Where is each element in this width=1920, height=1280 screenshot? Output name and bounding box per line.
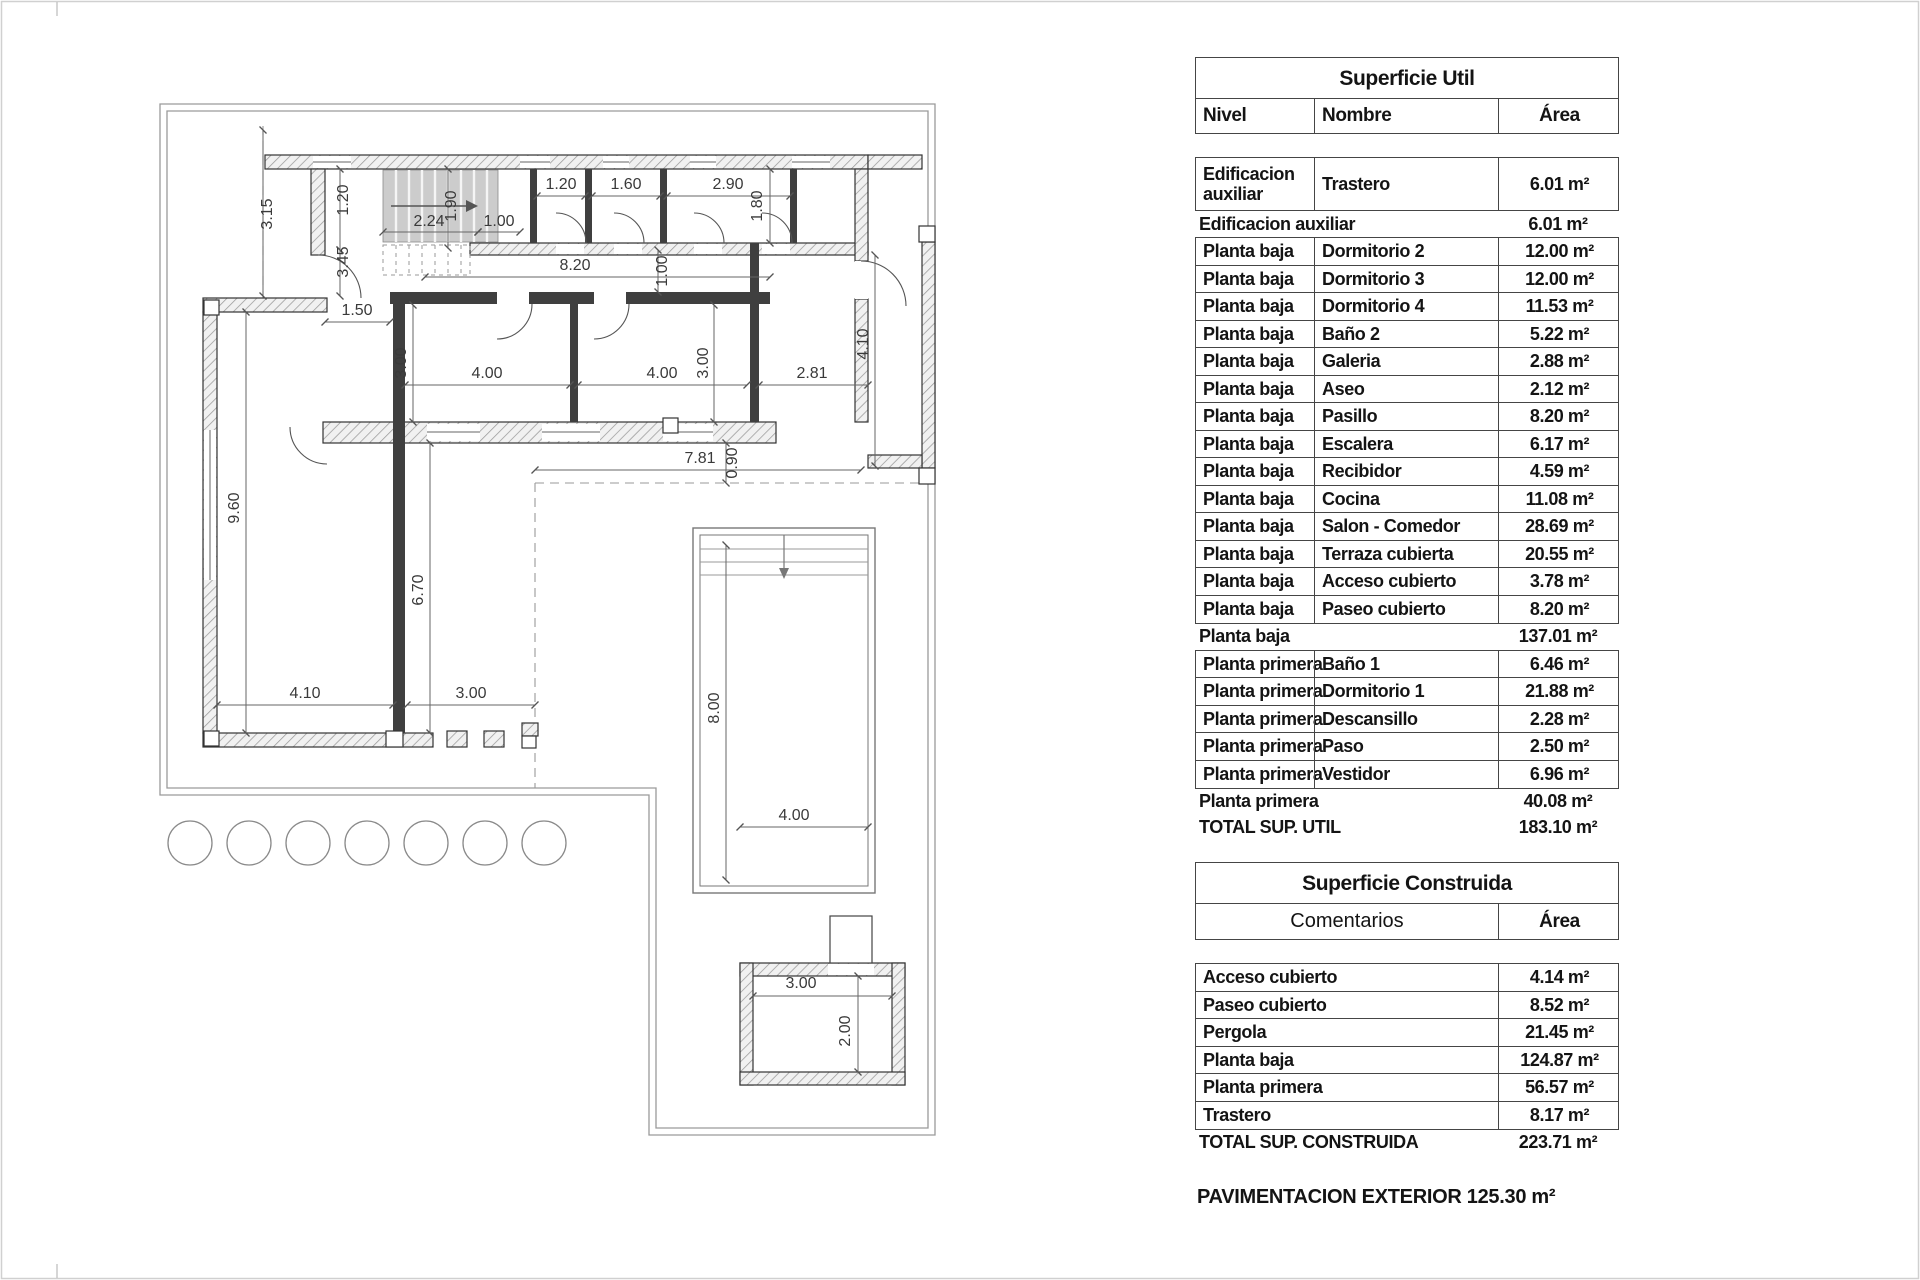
table-row: Planta primeraBaño 16.46 m² [1195, 650, 1619, 679]
table-row: Planta bajaRecibidor4.59 m² [1195, 457, 1619, 486]
table-row: Planta primeraVestidor6.96 m² [1195, 760, 1619, 789]
subtotal-label: Planta baja [1195, 624, 1497, 650]
subtotal-row: Planta primera40.08 m² [1195, 789, 1619, 815]
subtotal-area: 137.01 m² [1497, 624, 1619, 650]
dimension-label: 1.20 [545, 176, 576, 193]
table-row: Planta bajaDormitorio 212.00 m² [1195, 237, 1619, 266]
cell-area: 2.28 m² [1498, 706, 1620, 733]
cell-nombre: Paso [1314, 733, 1498, 760]
cell-nombre: Baño 2 [1314, 321, 1498, 348]
dimension-label: 2.81 [796, 365, 827, 382]
table-row: Planta baja124.87 m² [1195, 1046, 1619, 1075]
table-row: Planta bajaAseo2.12 m² [1195, 375, 1619, 404]
cell-nombre: Paseo cubierto [1314, 596, 1498, 623]
table-row: Planta bajaGaleria2.88 m² [1195, 347, 1619, 376]
total-label: TOTAL SUP. CONSTRUIDA [1195, 1130, 1497, 1156]
cell-nombre: Dormitorio 1 [1314, 678, 1498, 705]
subtotal-label: TOTAL SUP. UTIL [1195, 815, 1497, 841]
dimension-label: 8.00 [706, 692, 723, 723]
col-header-nombre: Nombre [1314, 99, 1498, 133]
dimension-label: 8.20 [559, 257, 590, 274]
cell-area: 56.57 m² [1498, 1074, 1620, 1101]
sheet-frame [2, 2, 1919, 1279]
col-header-comentarios: Comentarios [1196, 904, 1498, 939]
pavimentacion-note: PAVIMENTACION EXTERIOR 125.30 m² [1197, 1186, 1555, 1209]
table-row: Planta primera56.57 m² [1195, 1073, 1619, 1102]
dimension-label: 1.90 [443, 190, 460, 221]
cell-comentario: Planta baja [1196, 1047, 1498, 1074]
cell-area: 8.52 m² [1498, 992, 1620, 1019]
cell-nivel: Planta baja [1196, 458, 1314, 485]
table-row: Planta bajaDormitorio 312.00 m² [1195, 265, 1619, 294]
table-row: Edificacion auxiliarTrastero6.01 m² [1195, 157, 1619, 211]
cell-nivel: Planta primera [1196, 706, 1314, 733]
dimension-label: 1.00 [483, 213, 514, 230]
superficie-construida-rows: Acceso cubierto4.14 m²Paseo cubierto8.52… [1195, 963, 1619, 1156]
cell-area: 8.17 m² [1498, 1102, 1620, 1129]
cell-nivel: Planta baja [1196, 266, 1314, 293]
dimension-label: 3.15 [259, 198, 276, 229]
subtotal-row: Edificacion auxiliar6.01 m² [1195, 211, 1619, 237]
dimension-label: 1.00 [654, 255, 671, 286]
subtotal-row: Planta baja137.01 m² [1195, 624, 1619, 650]
superficie-construida-header: Superficie Construida Comentarios Área [1195, 862, 1619, 940]
cell-area: 124.87 m² [1498, 1047, 1620, 1074]
cell-area: 2.12 m² [1498, 376, 1620, 403]
cell-nombre: Vestidor [1314, 761, 1498, 788]
col-header-area2: Área [1498, 904, 1620, 939]
dimension-label: 4.10 [855, 328, 872, 359]
cell-area: 5.22 m² [1498, 321, 1620, 348]
superficie-util-table: Superficie Util Nivel Nombre Área Edific… [1195, 57, 1619, 841]
floor-plan: 3.151.203.451.902.241.001.201.602.901.80… [0, 0, 1920, 1280]
subtotal-area: 183.10 m² [1497, 815, 1619, 841]
total-row: TOTAL SUP. CONSTRUIDA223.71 m² [1195, 1130, 1619, 1156]
dimension-label: 4.00 [646, 365, 677, 382]
table-row: Paseo cubierto8.52 m² [1195, 991, 1619, 1020]
cell-nivel: Planta baja [1196, 321, 1314, 348]
cell-nombre: Aseo [1314, 376, 1498, 403]
dimension-label: 4.00 [471, 365, 502, 382]
cell-area: 8.20 m² [1498, 403, 1620, 430]
cell-nivel: Planta baja [1196, 486, 1314, 513]
cell-comentario: Trastero [1196, 1102, 1498, 1129]
cell-nivel: Planta baja [1196, 376, 1314, 403]
cell-area: 6.17 m² [1498, 431, 1620, 458]
dimension-label: 3.00 [393, 347, 410, 378]
cell-nivel: Planta baja [1196, 596, 1314, 623]
total-area: 223.71 m² [1497, 1130, 1619, 1156]
cell-nombre: Recibidor [1314, 458, 1498, 485]
cell-nombre: Acceso cubierto [1314, 568, 1498, 595]
cell-area: 4.59 m² [1498, 458, 1620, 485]
cell-nivel: Planta primera [1196, 761, 1314, 788]
table-row: Planta bajaTerraza cubierta20.55 m² [1195, 540, 1619, 569]
subtotal-row: TOTAL SUP. UTIL183.10 m² [1195, 815, 1619, 841]
cell-nivel: Planta primera [1196, 733, 1314, 760]
cell-area: 21.45 m² [1498, 1019, 1620, 1046]
subtotal-area: 6.01 m² [1497, 211, 1619, 237]
dimension-label: 3.45 [335, 246, 352, 277]
cell-comentario: Pergola [1196, 1019, 1498, 1046]
cell-area: 2.88 m² [1498, 348, 1620, 375]
dimension-label: 4.10 [289, 685, 320, 702]
subtotal-label: Edificacion auxiliar [1195, 211, 1497, 237]
cell-nombre: Dormitorio 4 [1314, 293, 1498, 320]
cell-area: 11.08 m² [1498, 486, 1620, 513]
cell-area: 20.55 m² [1498, 541, 1620, 568]
table-row: Planta primeraDescansillo2.28 m² [1195, 705, 1619, 734]
col-header-nivel: Nivel [1196, 99, 1314, 133]
cell-area: 12.00 m² [1498, 266, 1620, 293]
cell-nivel: Planta baja [1196, 568, 1314, 595]
cell-comentario: Paseo cubierto [1196, 992, 1498, 1019]
cell-nombre: Terraza cubierta [1314, 541, 1498, 568]
cell-area: 11.53 m² [1498, 293, 1620, 320]
drawing-sheet: 3.151.203.451.902.241.001.201.602.901.80… [0, 0, 1920, 1280]
table-row: Planta bajaEscalera6.17 m² [1195, 430, 1619, 459]
subtotal-area: 40.08 m² [1497, 789, 1619, 815]
dimension-label: 2.90 [712, 176, 743, 193]
cell-nivel: Planta baja [1196, 431, 1314, 458]
cell-nivel: Edificacion auxiliar [1196, 158, 1314, 210]
table-row: Trastero8.17 m² [1195, 1101, 1619, 1130]
cell-nombre: Cocina [1314, 486, 1498, 513]
dimension-label: 1.20 [335, 184, 352, 215]
table-row: Planta bajaSalon - Comedor28.69 m² [1195, 512, 1619, 541]
cell-nivel: Planta baja [1196, 403, 1314, 430]
cell-nombre: Dormitorio 2 [1314, 238, 1498, 265]
superficie-util-title: Superficie Util [1196, 58, 1618, 98]
table-row: Planta bajaPaseo cubierto8.20 m² [1195, 595, 1619, 624]
dimension-label: 9.60 [226, 492, 243, 523]
dimension-label: 1.80 [749, 190, 766, 221]
cell-nivel: Planta baja [1196, 238, 1314, 265]
dimension-label: 3.00 [785, 975, 816, 992]
table-row: Planta bajaAcceso cubierto3.78 m² [1195, 567, 1619, 596]
cell-comentario: Acceso cubierto [1196, 964, 1498, 991]
cell-area: 4.14 m² [1498, 964, 1620, 991]
dimension-label: 6.70 [410, 574, 427, 605]
table-row: Planta primeraDormitorio 121.88 m² [1195, 677, 1619, 706]
dimension-label: 1.60 [610, 176, 641, 193]
table-row: Planta bajaPasillo8.20 m² [1195, 402, 1619, 431]
superficie-construida-title: Superficie Construida [1196, 863, 1618, 903]
cell-nombre: Galeria [1314, 348, 1498, 375]
table-row: Acceso cubierto4.14 m² [1195, 963, 1619, 992]
cell-area: 6.96 m² [1498, 761, 1620, 788]
dimension-label: 1.50 [341, 302, 372, 319]
cell-nivel: Planta primera [1196, 678, 1314, 705]
cell-nivel: Planta baja [1196, 348, 1314, 375]
cell-nombre: Trastero [1314, 158, 1498, 210]
dimension-label: 7.81 [684, 450, 715, 467]
cell-nombre: Baño 1 [1314, 651, 1498, 678]
subtotal-label: Planta primera [1195, 789, 1497, 815]
cell-area: 3.78 m² [1498, 568, 1620, 595]
cell-nombre: Escalera [1314, 431, 1498, 458]
dimension-label: 2.24 [413, 213, 444, 230]
table-row: Pergola21.45 m² [1195, 1018, 1619, 1047]
cell-area: 6.01 m² [1498, 158, 1620, 210]
cell-area: 21.88 m² [1498, 678, 1620, 705]
cell-nivel: Planta baja [1196, 541, 1314, 568]
cell-nivel: Planta primera [1196, 651, 1314, 678]
superficie-util-rows: Edificacion auxiliarTrastero6.01 m²Edifi… [1195, 157, 1619, 841]
landscaping-circles [168, 821, 566, 865]
col-header-area: Área [1498, 99, 1620, 133]
cell-nombre: Dormitorio 3 [1314, 266, 1498, 293]
cell-nombre: Pasillo [1314, 403, 1498, 430]
table-row: Planta bajaBaño 25.22 m² [1195, 320, 1619, 349]
table-row: Planta bajaCocina11.08 m² [1195, 485, 1619, 514]
storage-building [740, 916, 905, 1085]
table-row: Planta primeraPaso2.50 m² [1195, 732, 1619, 761]
superficie-util-header: Superficie Util Nivel Nombre Área [1195, 57, 1619, 134]
cell-area: 8.20 m² [1498, 596, 1620, 623]
cell-area: 12.00 m² [1498, 238, 1620, 265]
cell-area: 2.50 m² [1498, 733, 1620, 760]
dimension-label: 3.00 [695, 347, 712, 378]
dimension-label: 0.90 [724, 447, 741, 478]
table-row: Planta bajaDormitorio 411.53 m² [1195, 292, 1619, 321]
dimension-label: 3.00 [455, 685, 486, 702]
cell-nombre: Descansillo [1314, 706, 1498, 733]
superficie-construida-table: Superficie Construida Comentarios Área A… [1195, 862, 1619, 1156]
storage-door-leaf [830, 916, 872, 963]
cell-area: 28.69 m² [1498, 513, 1620, 540]
cell-nivel: Planta baja [1196, 513, 1314, 540]
cell-comentario: Planta primera [1196, 1074, 1498, 1101]
cell-nivel: Planta baja [1196, 293, 1314, 320]
dimension-label: 4.00 [778, 807, 809, 824]
cell-nombre: Salon - Comedor [1314, 513, 1498, 540]
dimension-label: 2.00 [837, 1015, 854, 1046]
cell-area: 6.46 m² [1498, 651, 1620, 678]
